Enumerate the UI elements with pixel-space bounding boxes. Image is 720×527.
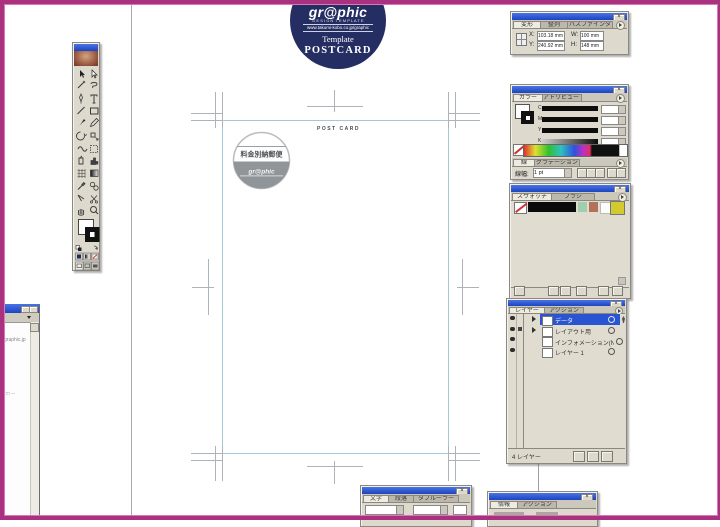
svg-text:料金別納郵便: 料金別納郵便 (241, 150, 284, 159)
svg-text:gr@phic: gr@phic (247, 169, 275, 176)
